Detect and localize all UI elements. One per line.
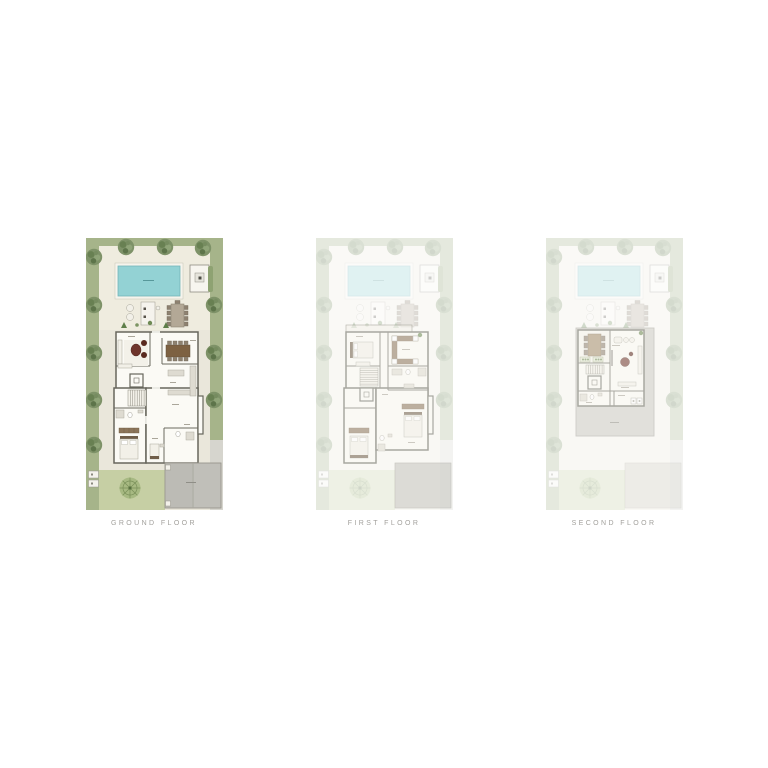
stairs-second bbox=[586, 365, 604, 389]
stairs bbox=[128, 374, 146, 406]
floor-plan-second bbox=[546, 238, 683, 510]
floor-plan-first bbox=[316, 238, 453, 510]
floor-label-second: SECOND FLOOR bbox=[572, 520, 657, 527]
bedroom-ground bbox=[119, 428, 139, 459]
floor-label-first: FIRST FLOOR bbox=[348, 520, 421, 527]
floorplan-gallery: GROUND FLOOR bbox=[0, 0, 768, 527]
garage-roof bbox=[625, 463, 681, 508]
bedroom-2 bbox=[349, 428, 369, 458]
floor-card-ground[interactable]: GROUND FLOOR bbox=[86, 238, 223, 527]
garage-roof bbox=[395, 463, 451, 508]
floor-card-first[interactable]: FIRST FLOOR bbox=[316, 238, 453, 527]
house-ground bbox=[114, 331, 203, 463]
garage bbox=[165, 463, 221, 508]
floor-card-second[interactable]: SECOND FLOOR bbox=[546, 238, 683, 527]
roof-terrace bbox=[579, 331, 609, 362]
floor-plan-ground bbox=[86, 238, 223, 510]
floor-label-ground: GROUND FLOOR bbox=[111, 520, 197, 527]
